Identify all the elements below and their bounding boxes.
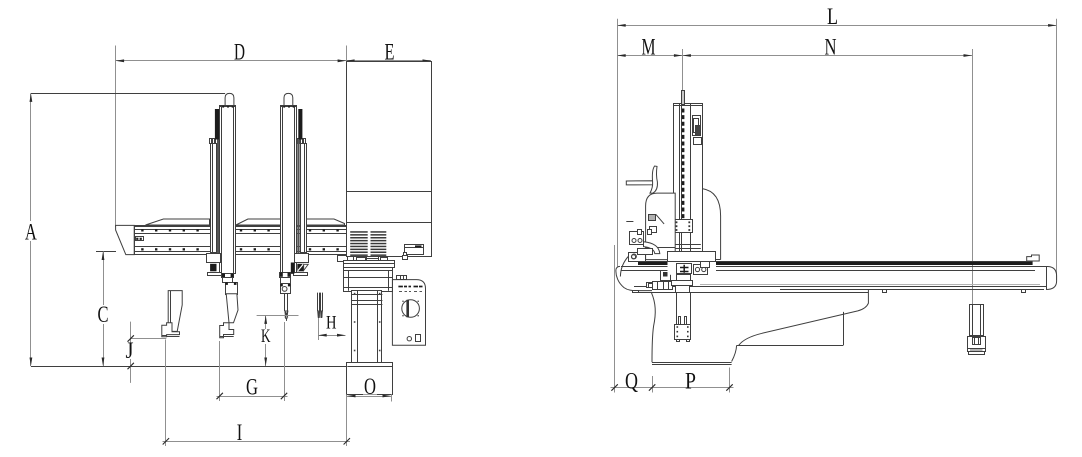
svg-text:P: P <box>685 369 696 394</box>
svg-text:G: G <box>246 375 258 400</box>
svg-text:I: I <box>237 420 243 445</box>
svg-text:A: A <box>25 220 37 245</box>
svg-text:H: H <box>326 313 337 334</box>
svg-text:C: C <box>98 302 109 327</box>
svg-text:J: J <box>126 338 134 363</box>
svg-text:O: O <box>364 374 376 399</box>
svg-text:D: D <box>234 40 245 65</box>
svg-text:K: K <box>261 326 271 347</box>
svg-text:N: N <box>825 35 837 60</box>
svg-text:L: L <box>827 4 838 29</box>
svg-text:M: M <box>642 35 656 60</box>
svg-text:E: E <box>385 40 395 65</box>
svg-text:Q: Q <box>625 369 638 394</box>
